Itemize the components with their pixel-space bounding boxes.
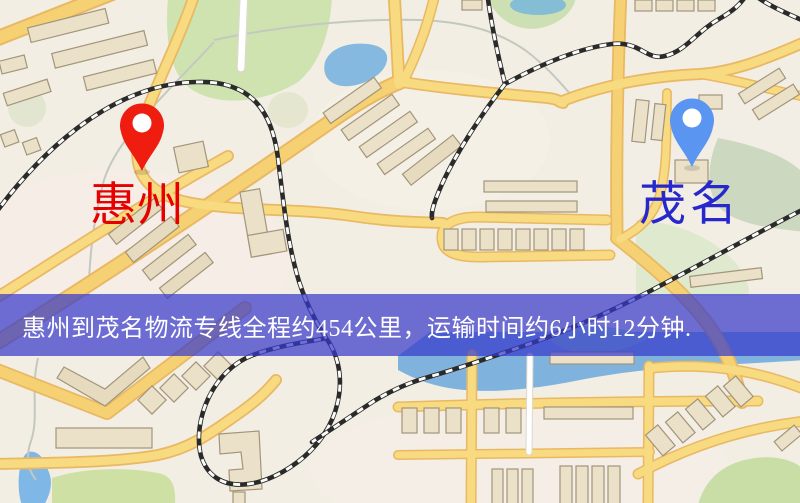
map-screenshot: 惠州 茂名 惠州到茂名物流专线全程约454公里，运输时间约6小时12分钟. [0,0,800,503]
origin-city-label: 惠州 [90,180,184,232]
destination-city-label: 茂名 [639,179,741,231]
map-canvas: 惠州 茂名 [0,0,800,503]
route-info-banner: 惠州到茂名物流专线全程约454公里，运输时间约6小时12分钟. [0,294,800,356]
origin-pin [120,103,164,175]
route-info-text: 惠州到茂名物流专线全程约454公里，运输时间约6小时12分钟. [22,308,692,343]
